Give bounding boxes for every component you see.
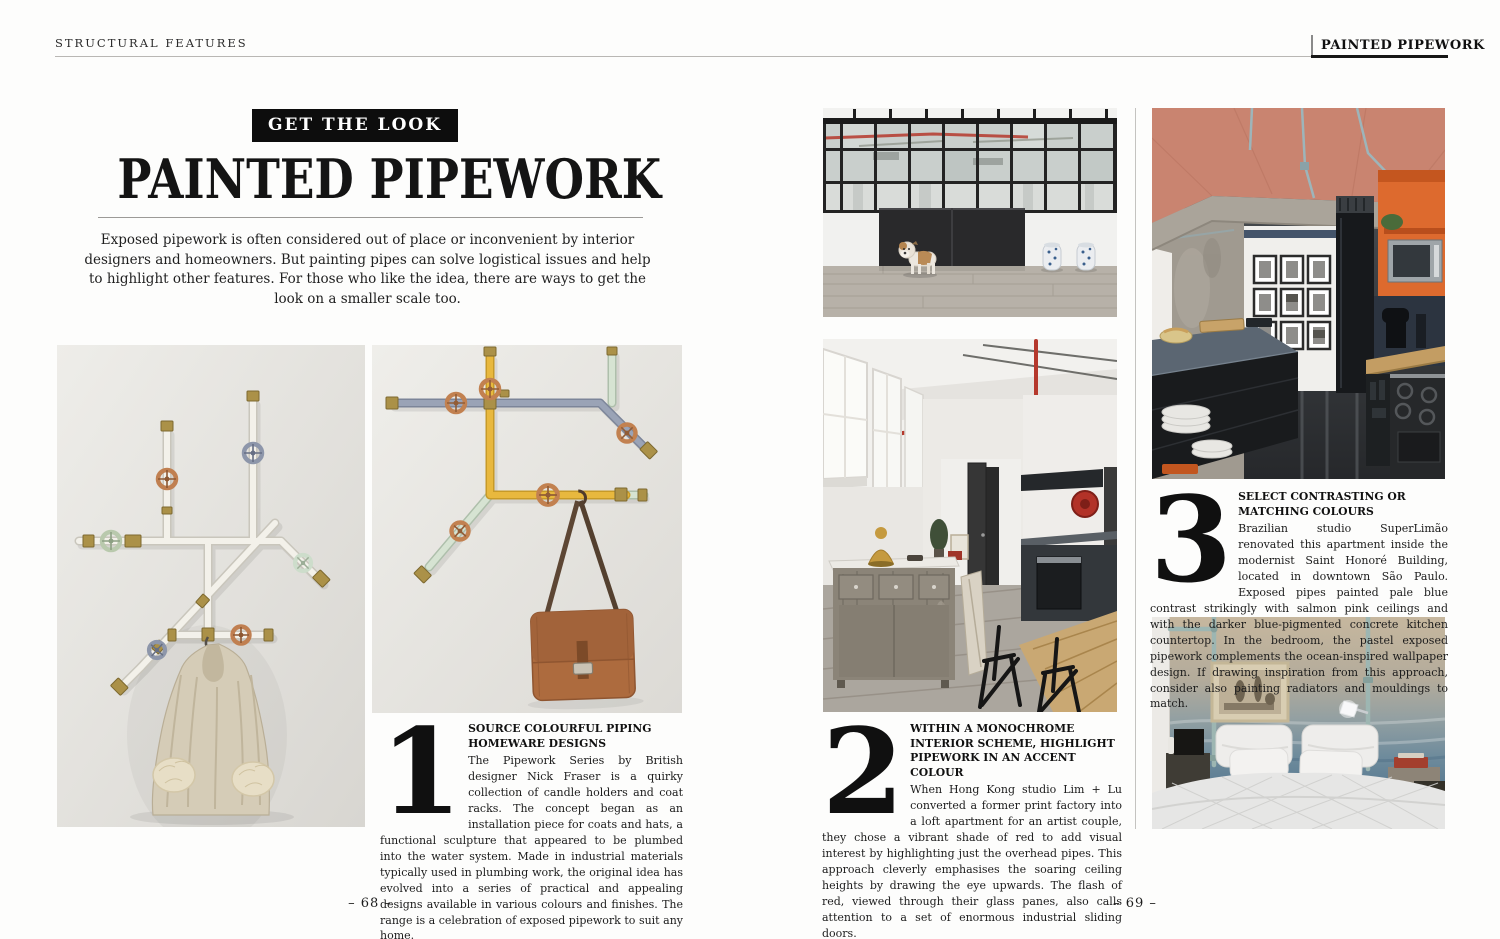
page-title: PAINTED PIPEWORK <box>117 147 562 211</box>
column-divider <box>1135 108 1136 829</box>
section-1-number: 1 <box>380 726 459 818</box>
intro-paragraph: Exposed pipework is often considered out… <box>80 231 655 309</box>
page-number-right: – 69 – <box>1090 896 1180 911</box>
title-rule <box>98 217 643 218</box>
running-header-left: STRUCTURAL FEATURES <box>55 36 248 50</box>
header-right-rule <box>1311 55 1448 58</box>
photo-bag-rack-pipework <box>372 345 682 713</box>
tip-section-3: 3 SELECT CONTRASTING OR MATCHING COLOURS… <box>1150 490 1448 712</box>
photo-coat-rack-pipework <box>57 345 365 827</box>
page-number-left: – 68 – <box>325 896 415 911</box>
photo-kitchen-salmon-ceiling <box>1152 108 1445 479</box>
tip-section-1: 1 SOURCE COLOURFUL PIPING HOMEWARE DESIG… <box>380 722 683 939</box>
magazine-spread: STRUCTURAL FEATURES PAINTED PIPEWORK GET… <box>0 0 1500 939</box>
header-rule <box>55 56 1447 57</box>
get-the-look-badge: GET THE LOOK <box>252 109 458 142</box>
section-3-number: 3 <box>1150 494 1229 586</box>
section-2-number: 2 <box>822 726 901 818</box>
tip-section-2: 2 WITHIN A MONOCHROME INTERIOR SCHEME, H… <box>822 722 1122 939</box>
running-header-right: PAINTED PIPEWORK <box>1321 38 1485 53</box>
header-right-divider <box>1311 35 1313 56</box>
photo-hallway-red-pipes <box>823 339 1117 712</box>
photo-loft-glass-partition-dog <box>823 108 1117 317</box>
